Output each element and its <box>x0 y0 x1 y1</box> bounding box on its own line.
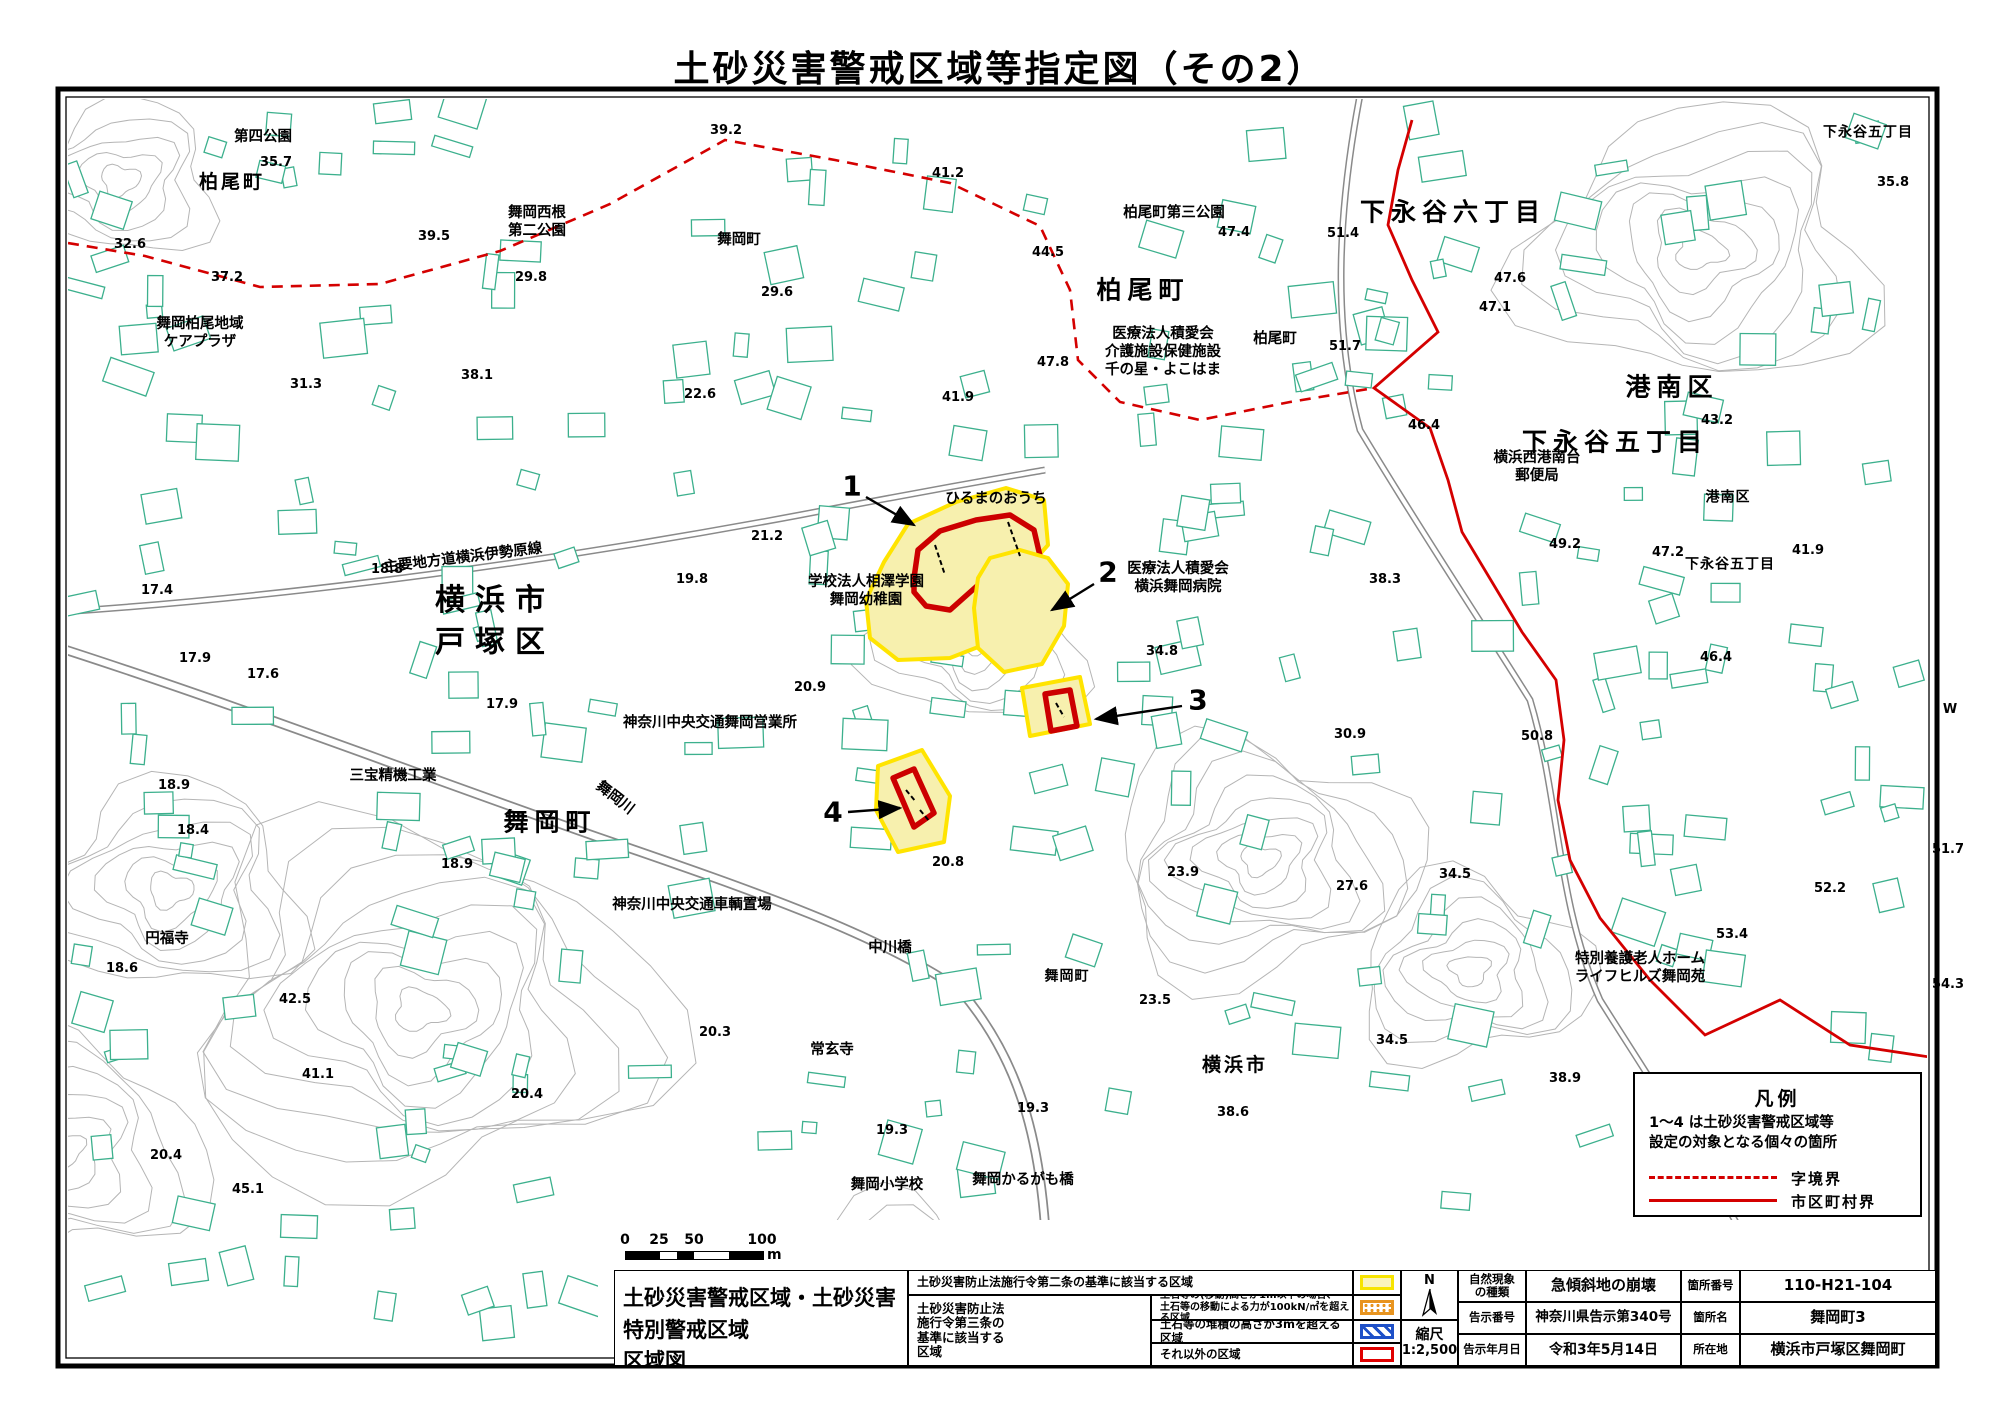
swatch-cell <box>1353 1295 1401 1320</box>
scale-tick: 25 <box>649 1232 668 1248</box>
scale-bar: 0 25 50 100 m <box>612 1232 797 1264</box>
scale-bar-rule <box>625 1251 764 1260</box>
legend-solid-label: 市区町村界 <box>1791 1191 1876 1212</box>
contour-lines <box>0 97 1885 1377</box>
scale-tick: 0 <box>620 1232 630 1248</box>
legend-dashed-label: 字境界 <box>1791 1168 1842 1189</box>
north-arrow-icon <box>1419 1288 1441 1318</box>
scale-tick: 100 <box>747 1232 776 1248</box>
site-no-value: 110-H21-104 <box>1740 1270 1936 1302</box>
map-legend-box: 凡例 1〜4 は土砂災害警戒区域等設定の対象となる個々の箇所 字境界 市区町村界 <box>1633 1072 1922 1217</box>
location-label: 所在地 <box>1681 1334 1740 1366</box>
scale-cell: 縮尺 1:2,500 <box>1401 1320 1458 1366</box>
info-table: 土砂災害警戒区域・土砂災害特別警戒区域区域図 土砂災害防止法施行令第二条の基準に… <box>614 1270 1936 1366</box>
law2-label: 土砂災害防止法施行令第二条の基準に該当する区域 <box>908 1270 1353 1295</box>
notice-no-value: 神奈川県告示第340号 <box>1526 1302 1681 1334</box>
north-label: N <box>1424 1274 1435 1289</box>
notice-no-label: 告示番号 <box>1458 1302 1526 1334</box>
orange-dotted-swatch-icon <box>1360 1300 1394 1315</box>
scale-tick: 50 <box>684 1232 703 1248</box>
legend-solid-row: 市区町村界 <box>1649 1191 1909 1209</box>
legend-note: 1〜4 は土砂災害警戒区域等設定の対象となる個々の箇所 <box>1649 1114 1837 1153</box>
nature-value: 急傾斜地の崩壊 <box>1526 1270 1681 1302</box>
swatch-cell <box>1353 1270 1401 1295</box>
nature-label: 自然現象 の種類 <box>1458 1270 1526 1302</box>
scale-label: 縮尺 <box>1416 1327 1444 1343</box>
location-value: 横浜市戸塚区舞岡町 <box>1740 1334 1936 1366</box>
law3-group-label: 土砂災害防止法 施行令第三条の 基準に該当する 区域 <box>908 1295 1151 1366</box>
site-name-value: 舞岡町3 <box>1740 1302 1936 1334</box>
legend-dashed-row: 字境界 <box>1649 1168 1909 1186</box>
dashed-line-icon <box>1649 1176 1777 1179</box>
red-outline-swatch-icon <box>1360 1347 1394 1362</box>
blue-hatched-swatch-icon <box>1360 1324 1394 1339</box>
site-name-label: 箇所名 <box>1681 1302 1740 1334</box>
solid-line-icon <box>1649 1199 1777 1202</box>
swatch-cell <box>1353 1343 1401 1366</box>
north-cell: N <box>1401 1270 1458 1320</box>
notice-date-value: 令和3年5月14日 <box>1526 1334 1681 1366</box>
law3-row2-label: 土石等の堆積の高さが3mを超える区域 <box>1151 1320 1353 1343</box>
swatch-cell <box>1353 1320 1401 1343</box>
hazard-map-page: 土砂災害警戒区域等指定図（その2） 第四公園柏尾町舞岡西根 第二公園舞岡町舞岡柏… <box>0 0 1999 1414</box>
hazard-zones <box>866 488 1090 852</box>
roads-and-river <box>60 95 1800 1366</box>
scale-unit: m <box>767 1247 782 1263</box>
yellow-zone-swatch-icon <box>1360 1275 1394 1290</box>
site-no-label: 箇所番号 <box>1681 1270 1740 1302</box>
law3-row1-label: 土石等の(移動)高さが1m以下の場合、 土石等の移動による力が100kN/㎡を超… <box>1151 1295 1353 1320</box>
legend-title: 凡例 <box>1635 1084 1920 1111</box>
notice-date-label: 告示年月日 <box>1458 1334 1526 1366</box>
map-sheet-title: 土砂災害警戒区域・土砂災害特別警戒区域区域図 <box>614 1270 908 1366</box>
scale-value: 1:2,500 <box>1402 1344 1457 1359</box>
law3-row3-label: それ以外の区域 <box>1151 1343 1353 1366</box>
